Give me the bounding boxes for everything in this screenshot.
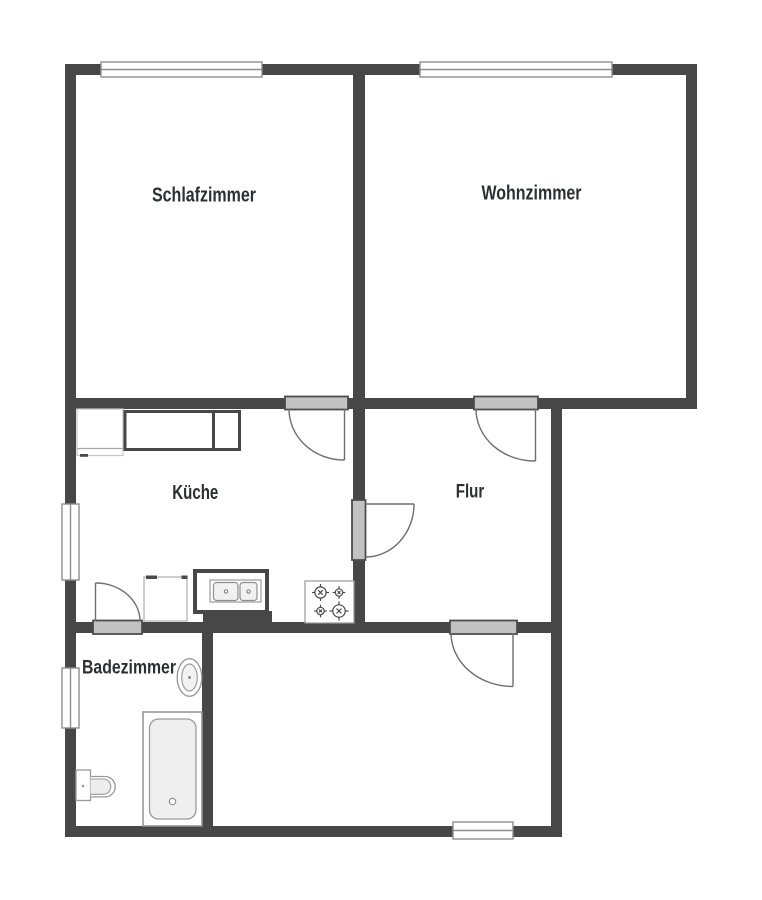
svg-text:Badezimmer: Badezimmer <box>82 658 176 679</box>
svg-text:Flur: Flur <box>456 482 485 503</box>
svg-text:Wohnzimmer: Wohnzimmer <box>482 183 582 205</box>
svg-text:Küche: Küche <box>172 482 218 504</box>
svg-text:Schlafzimmer: Schlafzimmer <box>152 185 256 207</box>
